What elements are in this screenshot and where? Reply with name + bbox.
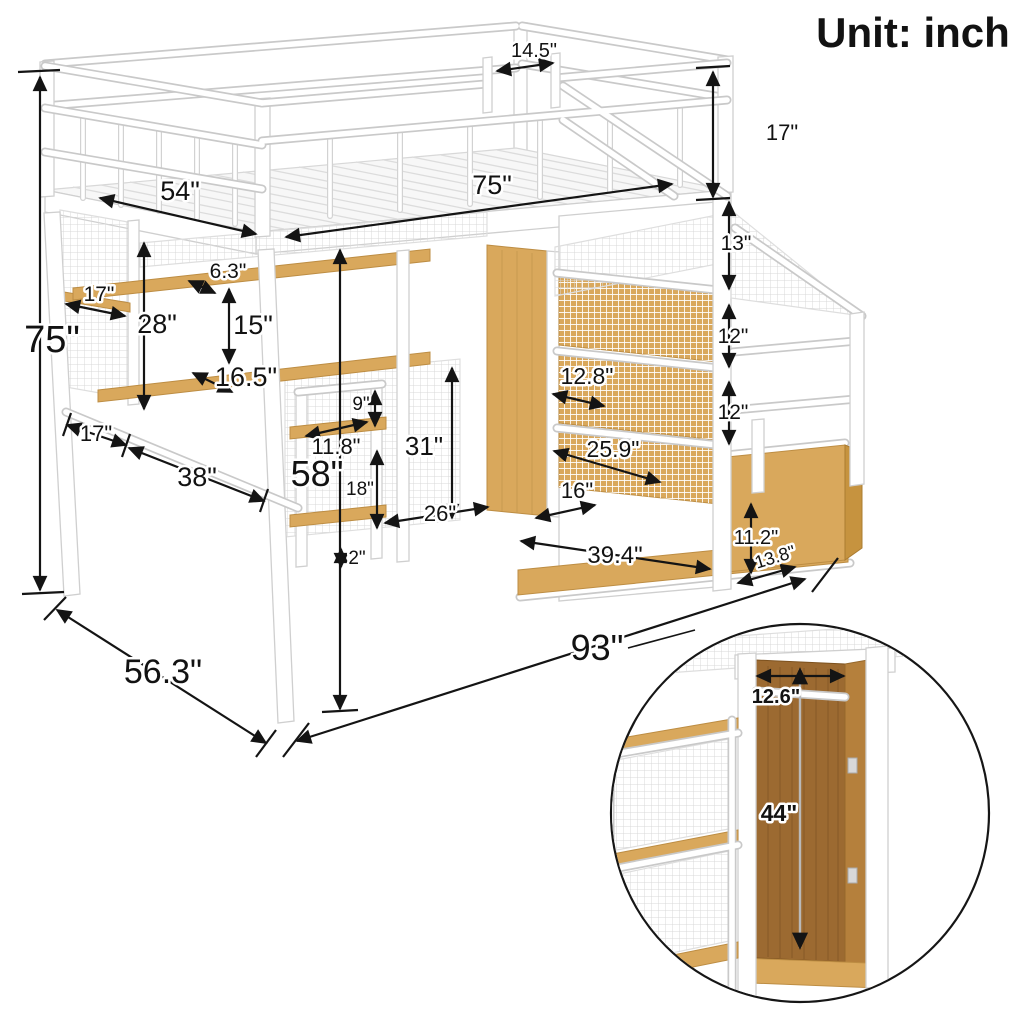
desk-length-label: 38" xyxy=(177,462,217,492)
bottom-step-height-label: 11.2" xyxy=(734,527,779,549)
guardrail-height-label: 17" xyxy=(766,120,798,145)
diagram-canvas: Unit: inch 14.5" 17" 75" 54" 75" 13" 12"… xyxy=(0,0,1024,1024)
bed-length-label: 75" xyxy=(472,170,512,200)
opening-post-left xyxy=(483,57,492,113)
railing-post xyxy=(850,312,864,486)
side-shelf-length-label: 17" xyxy=(84,283,115,306)
back-left-post xyxy=(40,61,54,197)
opening-width-label: 14.5" xyxy=(511,40,557,62)
unit-label: Unit: inch xyxy=(816,9,1010,56)
staircase-storage xyxy=(487,192,862,601)
wardrobe-front-height-label: 31" xyxy=(405,431,443,461)
stair-rise-mid-label: 12" xyxy=(718,325,749,348)
wardrobe-floor-depth-label: 26" xyxy=(424,501,456,526)
cubby-upper-label: 12.8" xyxy=(561,363,614,389)
desk-support-post xyxy=(397,250,409,562)
overall-height-label: 75" xyxy=(24,319,80,361)
inset-hinge-upper xyxy=(848,758,857,773)
underbed-clearance-label: 58" xyxy=(291,453,344,494)
interior-height-label: 44" xyxy=(761,800,798,826)
inset-right-frame xyxy=(866,646,888,988)
overall-depth-label: 56.3" xyxy=(124,653,202,691)
stair-rise-bottom-label: 12" xyxy=(718,401,749,424)
inset-hinge-lower xyxy=(848,868,857,883)
rod-width-label: 12.6" xyxy=(752,686,800,708)
bed-width-label: 54" xyxy=(160,176,200,206)
front-right-top-post xyxy=(718,56,733,193)
base-cubby-label: 16" xyxy=(561,478,593,503)
stair-rise-top-label: 13" xyxy=(721,232,752,255)
overall-length-label: 93" xyxy=(571,627,624,668)
upper-shelf-depth-label: 6.3" xyxy=(210,260,247,283)
tower-shelf-gap-label: 18" xyxy=(346,479,374,500)
shelf-gap-label: 15" xyxy=(233,310,273,340)
railing-lower-post xyxy=(752,419,764,493)
lower-shelf-depth-label: 16.5" xyxy=(215,362,277,392)
front-left-post xyxy=(255,98,270,237)
front-leg-inset-label: 17" xyxy=(80,421,112,446)
product-dimension-diagram: Unit: inch 14.5" 17" 75" 54" 75" 13" 12"… xyxy=(0,0,1024,1024)
tower-foot-label: 2" xyxy=(348,548,365,569)
inset-floor-board xyxy=(741,958,878,988)
storage-cubby-panels xyxy=(559,277,727,505)
shelf-to-desk-label: 28" xyxy=(137,309,177,339)
tower-top-gap-label: 9" xyxy=(352,394,369,415)
cubby-lower-label: 25.9" xyxy=(587,436,640,462)
inset-interior-side-panel xyxy=(845,660,868,975)
storage-base-length-label: 39.4" xyxy=(587,542,642,569)
